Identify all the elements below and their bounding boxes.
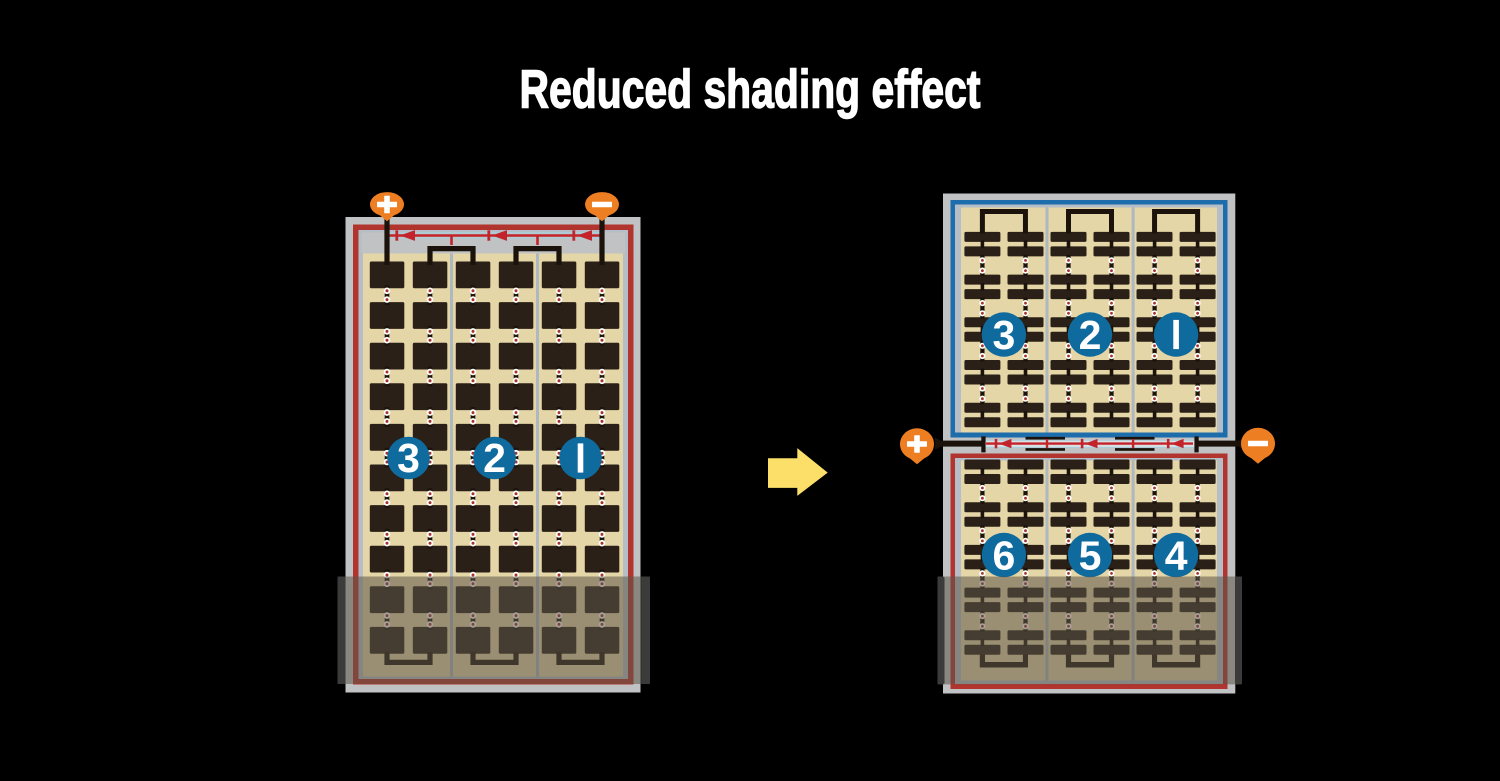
- svg-text:2: 2: [1079, 312, 1102, 358]
- svg-text:5: 5: [1079, 532, 1102, 578]
- svg-text:4: 4: [1165, 532, 1188, 578]
- svg-text:2: 2: [483, 435, 506, 481]
- svg-text:6: 6: [992, 532, 1015, 578]
- svg-text:Reduced shading effect: Reduced shading effect: [520, 60, 981, 120]
- svg-text:3: 3: [992, 312, 1015, 358]
- svg-text:3: 3: [397, 435, 420, 481]
